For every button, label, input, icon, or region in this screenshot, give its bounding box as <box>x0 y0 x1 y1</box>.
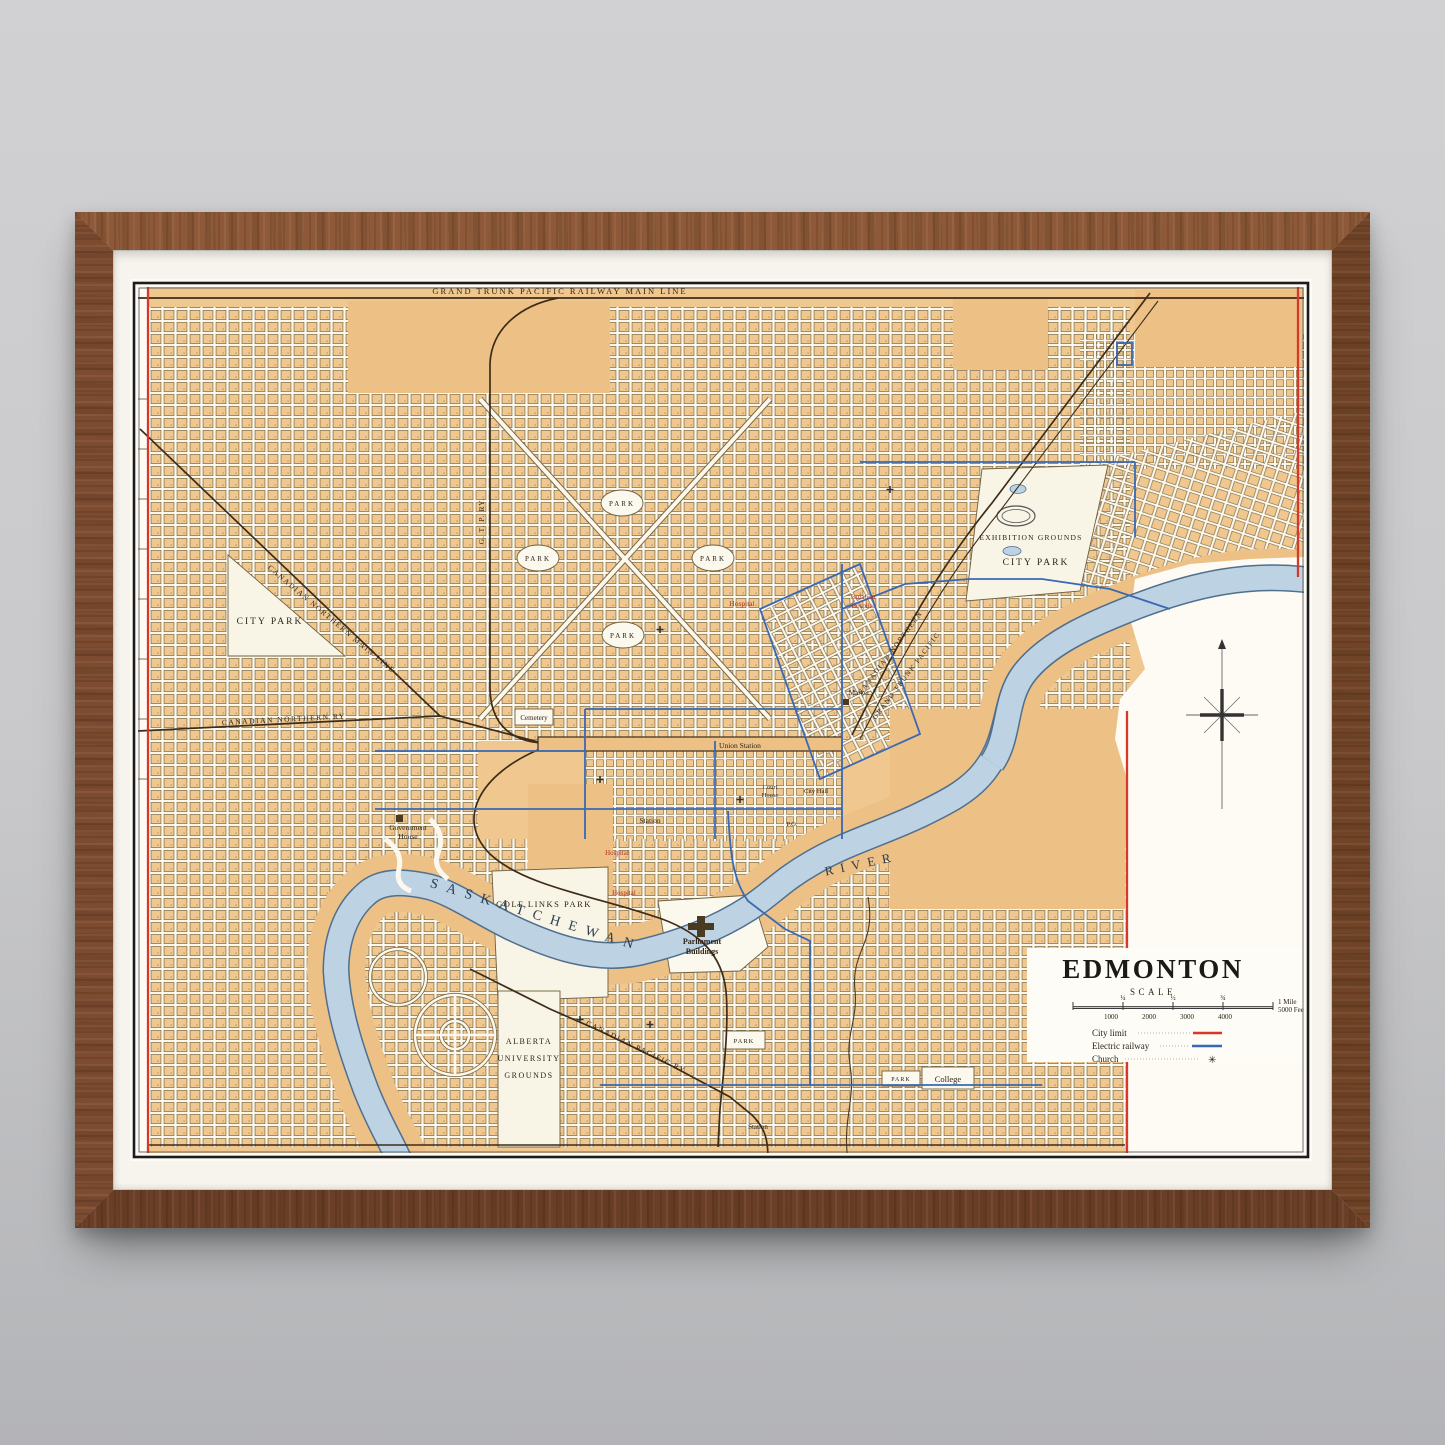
label-gtp-main-line: GRAND TRUNK PACIFIC RAILWAY MAIN LINE <box>432 286 687 296</box>
label-university: UNIVERSITY <box>498 1054 561 1063</box>
union-station-corridor <box>538 737 842 751</box>
mat-and-paper: EDMONTON SCALE ¼ ½ ¾ <box>113 250 1332 1190</box>
label-city-hall: City Hall <box>804 788 828 795</box>
legend-electric-railway-label: Electric railway <box>1092 1041 1150 1051</box>
map-print: EDMONTON SCALE ¼ ½ ¾ <box>130 279 1312 1161</box>
scale-tick: 3000 <box>1180 1013 1195 1021</box>
label-government-house: Government <box>389 823 427 832</box>
label-isolation-hospital: Hospital <box>851 602 875 610</box>
label-exhibition-grounds: EXHIBITION GROUNDS <box>979 533 1082 542</box>
label-gtp-ry: G. T. P. RY. <box>477 498 486 545</box>
label-parliament: Parliament <box>683 937 722 946</box>
label-park-oval: PARK <box>700 555 726 563</box>
scale-mile-unit: 1 Mile <box>1278 998 1296 1006</box>
scale-tick: 4000 <box>1218 1013 1233 1021</box>
scale-tick: ½ <box>1170 994 1175 1002</box>
label-university: GROUNDS <box>504 1071 553 1080</box>
label-isolation-hospital: Isolation <box>851 593 876 601</box>
label-parliament: Buildings <box>686 947 718 956</box>
frame-top <box>75 212 1370 250</box>
label-union-station: Union Station <box>719 741 761 750</box>
outside-city-area <box>1115 557 1304 1160</box>
label-park-college: PARK <box>891 1077 910 1083</box>
label-hospital: Hospital <box>612 889 636 897</box>
scale-heading: SCALE <box>1130 987 1176 997</box>
title-cartouche: EDMONTON SCALE ¼ ½ ¾ <box>1027 948 1306 1066</box>
label-city-park-west: CITY PARK <box>237 617 304 627</box>
label-hospital: Hospital <box>729 599 754 608</box>
label-cemetery: Cemetery <box>520 714 548 722</box>
label-court-house: House <box>762 792 779 799</box>
label-government-house: House <box>398 832 418 841</box>
label-park-oval: PARK <box>525 555 551 563</box>
scale-tick: ¾ <box>1220 994 1225 1002</box>
legend-city-limit-label: City limit <box>1092 1028 1127 1038</box>
scale-tick: 2000 <box>1142 1013 1157 1021</box>
label-station-south: Station <box>748 1123 768 1131</box>
scale-tick: ¼ <box>1120 994 1125 1002</box>
label-park-oval: PARK <box>609 500 635 508</box>
government-house-icon <box>396 815 403 822</box>
frame-left <box>75 212 113 1228</box>
scale-tick: 1000 <box>1104 1013 1119 1021</box>
edmonton-map: EDMONTON SCALE ¼ ½ ¾ <box>130 279 1312 1161</box>
label-station-downtown: Station <box>639 816 661 825</box>
legend-church-label: Church <box>1092 1054 1119 1064</box>
picture-frame: EDMONTON SCALE ¼ ½ ¾ <box>75 212 1370 1228</box>
scale-feet-unit: 5000 Feet <box>1278 1006 1306 1014</box>
frame-bottom <box>75 1190 1370 1228</box>
label-park-oval: PARK <box>610 632 636 640</box>
label-court-house: Court <box>763 784 778 791</box>
label-market: Market <box>849 689 869 697</box>
label-university: ALBERTA <box>506 1037 552 1046</box>
market-icon <box>843 699 849 705</box>
map-title: EDMONTON <box>1062 954 1244 984</box>
wall: EDMONTON SCALE ¼ ½ ¾ <box>0 0 1445 1445</box>
frame-right <box>1332 212 1370 1228</box>
legend-church-symbol: ✳ <box>1208 1055 1216 1066</box>
label-city-park-ne: CITY PARK <box>1003 558 1070 568</box>
label-park-south: PARK <box>734 1038 755 1045</box>
label-post-office: P.O. <box>787 821 798 828</box>
label-college: College <box>935 1074 962 1084</box>
label-hospital: Hospital <box>605 849 629 857</box>
